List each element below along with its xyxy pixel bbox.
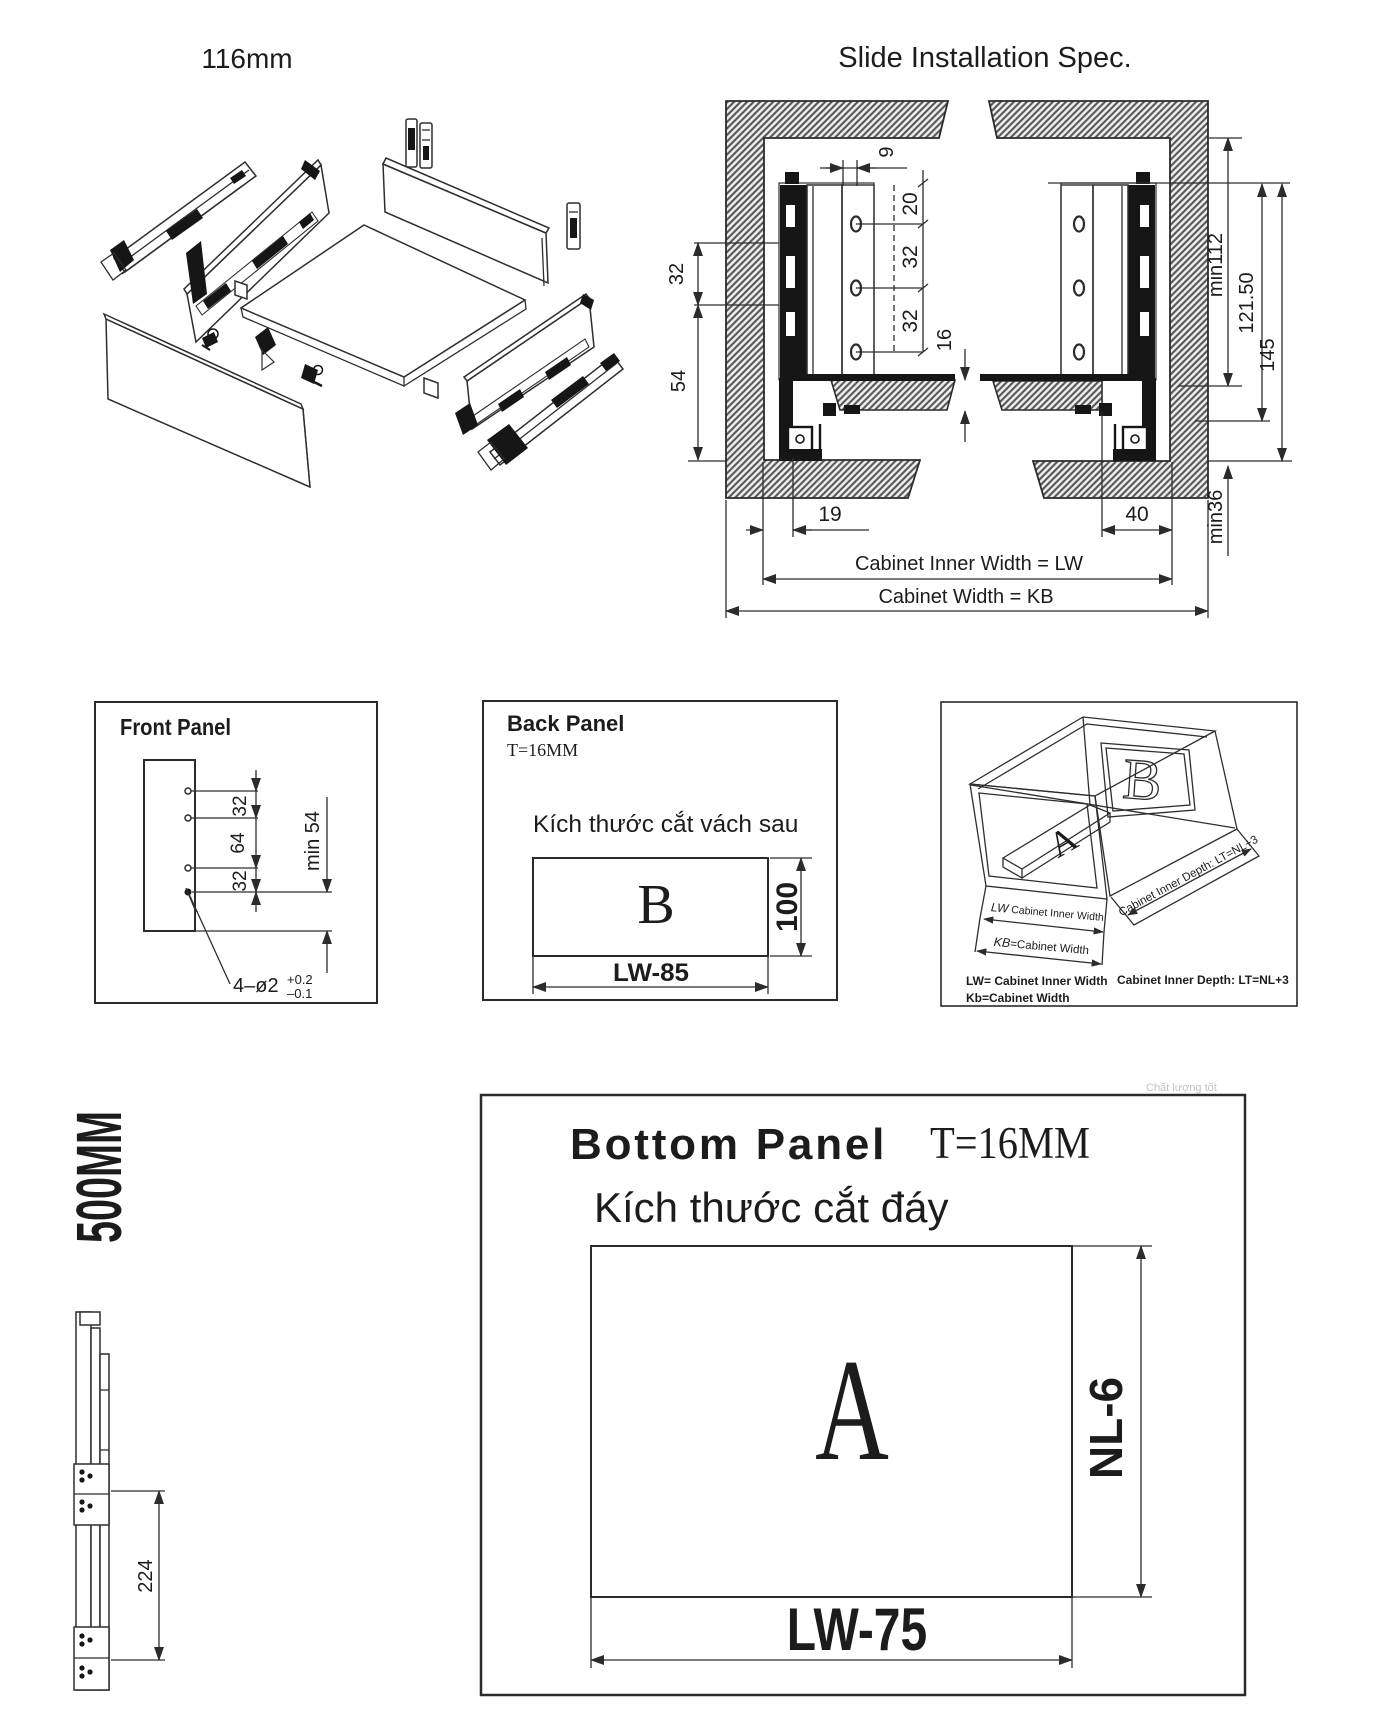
svg-text:Cabinet Inner Depth: LT=NL+3: Cabinet Inner Depth: LT=NL+3 — [1117, 973, 1289, 987]
svg-text:20: 20 — [899, 192, 922, 215]
svg-text:Cabinet Inner Width = LW: Cabinet Inner Width = LW — [855, 553, 1083, 575]
svg-text:32: 32 — [230, 795, 251, 816]
svg-text:9: 9 — [876, 146, 898, 157]
svg-text:LW= Cabinet Inner Width: LW= Cabinet Inner Width — [966, 974, 1108, 988]
svg-text:B: B — [1121, 746, 1164, 814]
svg-text:Cabinet Inner Depth: LT=NL+3: Cabinet Inner Depth: LT=NL+3 — [1117, 834, 1260, 919]
svg-text:145: 145 — [1257, 338, 1279, 371]
svg-text:B: B — [637, 874, 674, 936]
svg-text:32: 32 — [899, 309, 922, 332]
svg-text:54: 54 — [668, 370, 690, 392]
svg-text:Kích thước cắt vách sau: Kích thước cắt vách sau — [533, 811, 798, 838]
svg-text:Front Panel: Front Panel — [120, 714, 231, 740]
svg-text:224: 224 — [135, 1559, 157, 1592]
svg-text:min36: min36 — [1205, 490, 1227, 544]
svg-text:19: 19 — [818, 503, 841, 526]
svg-text:A: A — [815, 1330, 889, 1491]
svg-text:100: 100 — [771, 882, 804, 932]
svg-text:LW-85: LW-85 — [613, 959, 689, 987]
svg-text:Chất lượng tốt: Chất lượng tốt — [1146, 1082, 1217, 1094]
svg-text:4–ø2: 4–ø2 — [233, 975, 279, 997]
svg-text:T=16MM: T=16MM — [507, 740, 578, 760]
svg-text:NL-6: NL-6 — [1080, 1377, 1132, 1479]
svg-text:16: 16 — [934, 329, 956, 351]
svg-text:121.50: 121.50 — [1236, 272, 1258, 333]
svg-text:Kb=Cabinet Width: Kb=Cabinet Width — [966, 991, 1070, 1005]
svg-text:LW Cabinet Inner Width: LW Cabinet Inner Width — [990, 900, 1104, 924]
svg-text:LW-75: LW-75 — [787, 1596, 927, 1663]
svg-text:A: A — [1042, 818, 1085, 866]
svg-text:32: 32 — [230, 870, 251, 891]
svg-text:40: 40 — [1125, 503, 1148, 526]
svg-text:T=16MM: T=16MM — [930, 1118, 1090, 1168]
svg-text:32: 32 — [666, 263, 688, 285]
svg-text:116mm: 116mm — [201, 43, 292, 74]
svg-text:–0.1: –0.1 — [287, 986, 312, 1001]
svg-text:32: 32 — [899, 245, 922, 268]
svg-text:+0.2: +0.2 — [287, 972, 313, 987]
svg-text:64: 64 — [228, 832, 249, 854]
svg-text:Cabinet Width = KB: Cabinet Width = KB — [878, 586, 1053, 608]
svg-text:Slide Installation Spec.: Slide Installation Spec. — [838, 42, 1131, 74]
svg-text:min112: min112 — [1205, 233, 1227, 297]
svg-text:Back Panel: Back Panel — [507, 711, 624, 736]
svg-text:Kích thước cắt đáy: Kích thước cắt đáy — [594, 1184, 948, 1231]
svg-text:Bottom Panel: Bottom Panel — [570, 1120, 887, 1169]
svg-text:500MM: 500MM — [63, 1111, 135, 1243]
svg-text:min 54: min 54 — [302, 811, 324, 871]
